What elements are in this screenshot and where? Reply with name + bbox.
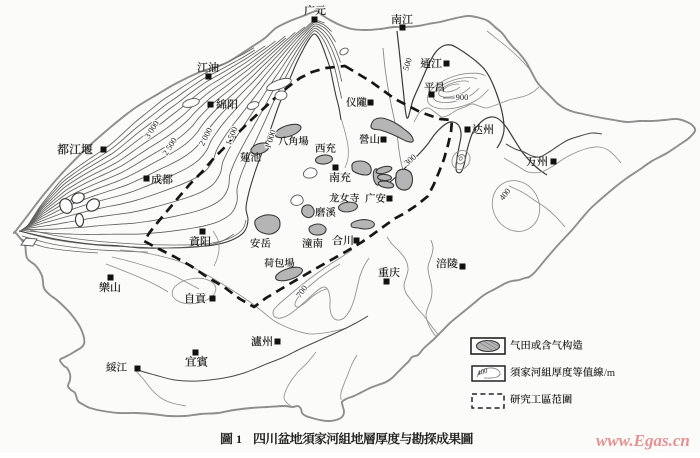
svg-text:1: 1 xyxy=(236,432,242,446)
svg-text:www.Egas.cn: www.Egas.cn xyxy=(596,431,690,450)
svg-text:/m: /m xyxy=(604,368,615,379)
svg-text:900: 900 xyxy=(456,92,469,102)
